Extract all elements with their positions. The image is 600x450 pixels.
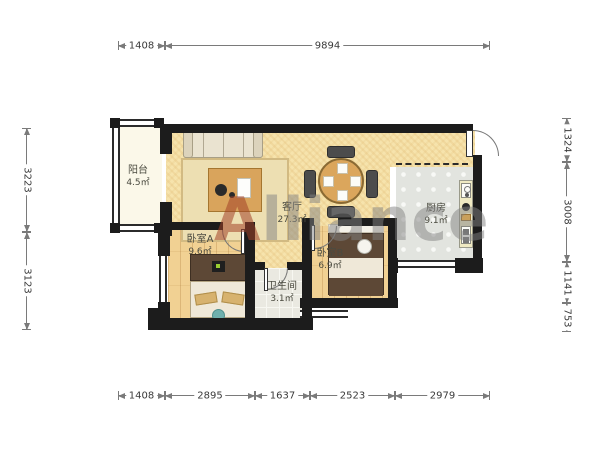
room-area: 6.9㎡ <box>300 261 360 272</box>
dimension-left-2: 3123 <box>20 232 34 330</box>
bedroom-a-door-leaf <box>241 229 245 254</box>
room-label-kitchen: 厨房 9.1㎡ <box>406 203 466 227</box>
dimension-left-1: 3223 <box>20 128 34 232</box>
wall <box>160 124 172 154</box>
wall-corner-block <box>110 118 120 128</box>
dining-chair-left <box>304 170 316 198</box>
dining-chair-right <box>366 170 378 198</box>
wall <box>158 302 170 330</box>
cup-icon <box>229 192 235 198</box>
dimension-right-1: 1324 <box>560 118 574 162</box>
plate-icon <box>323 176 334 187</box>
plate-icon <box>337 190 348 201</box>
room-label-living: 客厅 27.3㎡ <box>262 202 322 226</box>
dimension-bottom-3: 1637 <box>255 389 310 403</box>
wall-corner-block <box>154 118 164 128</box>
kitchen-window <box>396 260 456 268</box>
room-name: 客厅 <box>282 202 302 213</box>
wall-corner-block <box>110 223 120 233</box>
room-name: 阳台 <box>128 165 148 176</box>
room-label-bedroom-a: 卧室A 9.6㎡ <box>170 234 230 258</box>
dining-chair-bottom <box>327 206 355 218</box>
balcony-window-bottom <box>120 224 154 232</box>
tray-icon <box>237 178 251 198</box>
room-area: 9.1㎡ <box>406 216 466 227</box>
wall <box>455 258 483 273</box>
dimension-top-2: 9894 <box>165 39 490 53</box>
teapot-icon <box>215 184 227 196</box>
floor-plan: 阳台 4.5㎡ 客厅 27.3㎡ 厨房 9.1㎡ 卧室A 9.6㎡ 卧室B 6.… <box>0 0 600 450</box>
entry-door-arc <box>473 130 499 156</box>
dimension-bottom-2: 2895 <box>165 389 255 403</box>
entry-hall-floor <box>390 131 475 167</box>
bedroom-a-window <box>159 256 167 302</box>
tv-icon <box>212 261 225 272</box>
wall <box>300 298 398 308</box>
dining-chair-top <box>327 146 355 158</box>
wall <box>245 222 255 330</box>
entry-door-leaf <box>466 130 473 157</box>
room-name: 厨房 <box>426 203 446 214</box>
wall <box>148 318 313 330</box>
plate-icon <box>350 176 361 187</box>
room-area: 3.1㎡ <box>252 294 312 305</box>
room-name: 卧室A <box>187 234 214 245</box>
balcony-window-top <box>120 119 154 127</box>
room-name: 卧室B <box>317 248 344 259</box>
room-label-bedroom-b: 卧室B 6.9㎡ <box>300 248 360 272</box>
room-label-bathroom: 卫生间 3.1㎡ <box>252 281 312 305</box>
room-area: 9.6㎡ <box>170 247 230 258</box>
dimension-bottom-4: 2523 <box>310 389 395 403</box>
room-name: 卫生间 <box>267 281 297 292</box>
wall <box>473 155 482 272</box>
plate-icon <box>337 163 348 174</box>
dimension-top-1: 1408 <box>118 39 165 53</box>
stove-icon <box>461 226 471 244</box>
room-area: 27.3㎡ <box>262 215 322 226</box>
wall <box>388 218 397 308</box>
dimension-bottom-1: 1408 <box>118 389 165 403</box>
dimension-right-4: 753 <box>560 303 574 332</box>
wall <box>338 218 397 226</box>
kitchen-dashed-boundary <box>396 163 468 165</box>
dimension-right-3: 1141 <box>560 262 574 303</box>
dining-table <box>318 158 364 204</box>
dimension-bottom-5: 2979 <box>395 389 490 403</box>
wall <box>163 124 473 133</box>
wall <box>163 222 223 230</box>
dimension-right-2: 3008 <box>560 162 574 262</box>
room-label-balcony: 阳台 4.5㎡ <box>113 165 163 189</box>
wall-corner-block <box>154 223 164 233</box>
sink-icon <box>461 183 471 198</box>
room-area: 4.5㎡ <box>113 178 163 189</box>
